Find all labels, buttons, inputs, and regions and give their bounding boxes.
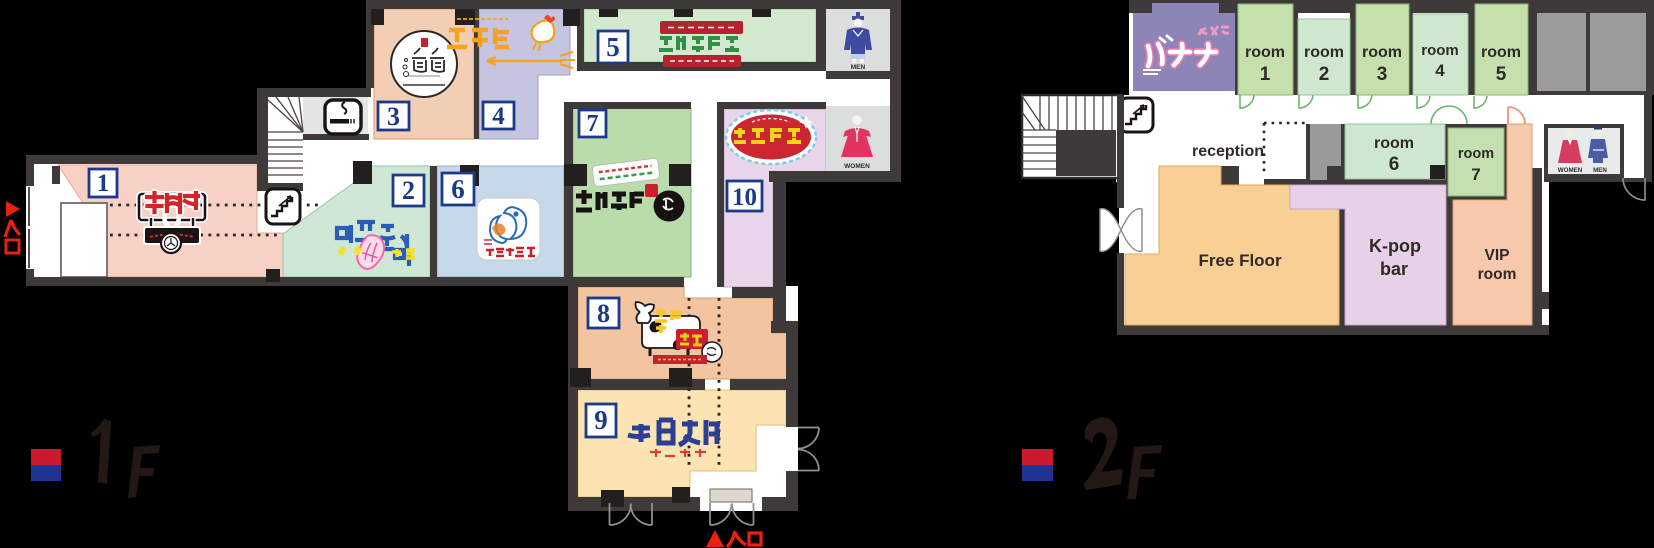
svg-text:5: 5 xyxy=(606,32,620,62)
svg-text:VIP: VIP xyxy=(1485,247,1510,264)
svg-text:1: 1 xyxy=(97,170,110,197)
svg-text:6: 6 xyxy=(1389,154,1400,175)
svg-text:4: 4 xyxy=(1435,61,1445,80)
svg-text:room: room xyxy=(1421,42,1459,59)
svg-text:Free Floor: Free Floor xyxy=(1198,251,1282,270)
svg-text:4: 4 xyxy=(492,103,505,130)
svg-text:2: 2 xyxy=(402,176,415,205)
svg-text:1: 1 xyxy=(1260,64,1271,85)
svg-text:8: 8 xyxy=(597,299,610,328)
svg-text:room: room xyxy=(1478,266,1517,283)
svg-text:room: room xyxy=(1304,44,1344,61)
svg-text:3: 3 xyxy=(1377,64,1388,85)
svg-text:WOMEN: WOMEN xyxy=(1558,167,1583,174)
svg-text:reception: reception xyxy=(1192,143,1264,160)
svg-text:K-pop: K-pop xyxy=(1369,236,1421,256)
svg-text:room: room xyxy=(1245,44,1285,61)
svg-text:MEN: MEN xyxy=(851,64,866,71)
svg-text:room: room xyxy=(1458,146,1494,162)
svg-text:6: 6 xyxy=(451,174,465,204)
svg-text:9: 9 xyxy=(594,405,608,435)
svg-text:3: 3 xyxy=(387,102,400,131)
svg-text:room: room xyxy=(1481,44,1521,61)
svg-text:room: room xyxy=(1374,135,1414,152)
svg-text:2: 2 xyxy=(1319,64,1330,85)
svg-text:7: 7 xyxy=(1471,165,1480,184)
svg-text:7: 7 xyxy=(587,111,599,137)
svg-text:room: room xyxy=(1362,44,1402,61)
svg-text:MEN: MEN xyxy=(1593,167,1607,174)
svg-text:bar: bar xyxy=(1380,259,1408,279)
svg-text:10: 10 xyxy=(732,184,757,211)
svg-text:WOMEN: WOMEN xyxy=(844,163,870,170)
svg-text:5: 5 xyxy=(1496,64,1507,85)
